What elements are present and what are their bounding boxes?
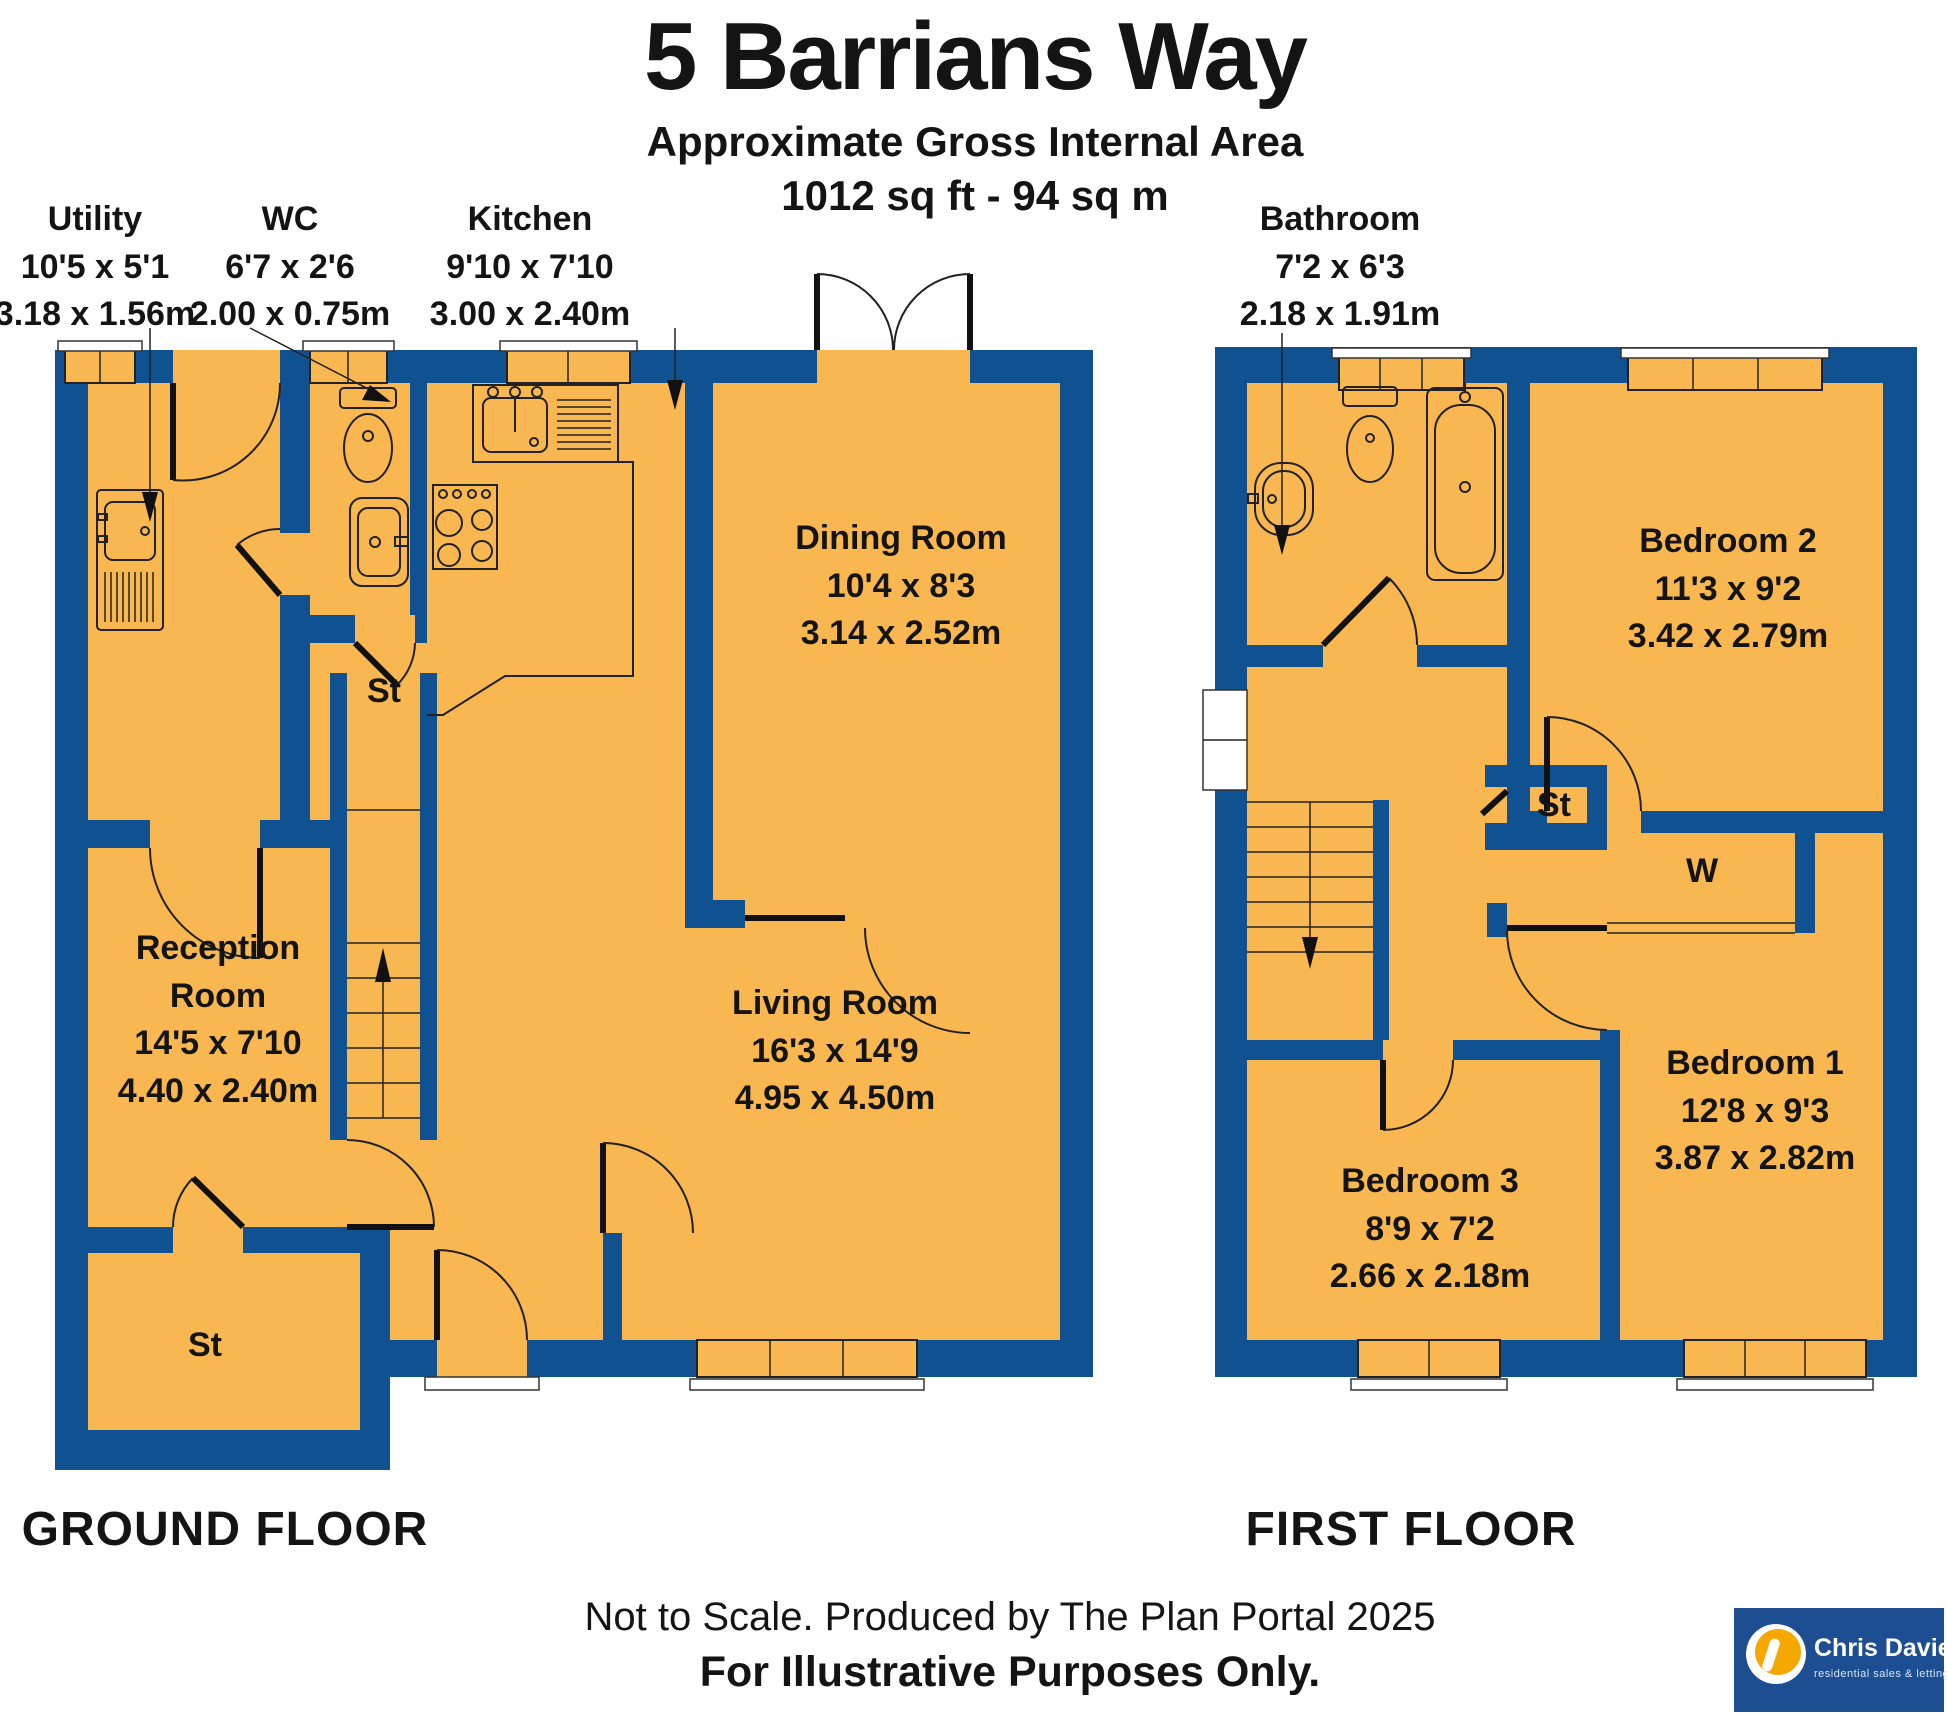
bedroom3-metric: 2.66 x 2.18m bbox=[1330, 1253, 1530, 1301]
dining-metric: 3.14 x 2.52m bbox=[795, 610, 1007, 658]
wc-metric: 2.00 x 0.75m bbox=[190, 291, 390, 339]
gf-bay-window bbox=[697, 1340, 917, 1377]
page-title: 5 Barrians Way bbox=[644, 2, 1306, 112]
label-bedroom1: Bedroom 1 12'8 x 9'3 3.87 x 2.82m bbox=[1655, 1040, 1855, 1183]
reception-metric: 4.40 x 2.40m bbox=[103, 1068, 333, 1116]
dining-imperial: 10'4 x 8'3 bbox=[795, 563, 1007, 611]
gf-frenchdoor-opening bbox=[817, 350, 970, 383]
reception-imperial: 14'5 x 7'10 bbox=[103, 1020, 333, 1068]
bedroom2-name: Bedroom 2 bbox=[1628, 518, 1828, 566]
label-bedroom3: Bedroom 3 8'9 x 7'2 2.66 x 2.18m bbox=[1330, 1158, 1530, 1301]
label-kitchen: Kitchen 9'10 x 7'10 3.00 x 2.40m bbox=[430, 196, 630, 339]
living-name: Living Room bbox=[732, 980, 938, 1028]
wc-imperial: 6'7 x 2'6 bbox=[190, 244, 390, 292]
label-reception: Reception Room 14'5 x 7'10 4.40 x 2.40m bbox=[103, 925, 333, 1115]
bedroom1-imperial: 12'8 x 9'3 bbox=[1655, 1088, 1855, 1136]
page-area: 1012 sq ft - 94 sq m bbox=[781, 172, 1169, 220]
label-bathroom: Bathroom 7'2 x 6'3 2.18 x 1.91m bbox=[1240, 196, 1440, 339]
first-floor-title: FIRST FLOOR bbox=[1246, 1502, 1577, 1557]
bedroom1-name: Bedroom 1 bbox=[1655, 1040, 1855, 1088]
bedroom1-metric: 3.87 x 2.82m bbox=[1655, 1135, 1855, 1183]
label-living: Living Room 16'3 x 14'9 4.95 x 4.50m bbox=[732, 980, 938, 1123]
label-dining: Dining Room 10'4 x 8'3 3.14 x 2.52m bbox=[795, 515, 1007, 658]
page-subtitle: Approximate Gross Internal Area bbox=[647, 118, 1304, 166]
bathroom-imperial: 7'2 x 6'3 bbox=[1240, 244, 1440, 292]
label-utility: Utility 10'5 x 5'1 3.18 x 1.56m bbox=[0, 196, 195, 339]
utility-metric: 3.18 x 1.56m bbox=[0, 291, 195, 339]
gf-store-room-tag: St bbox=[188, 1326, 222, 1365]
ground-floor-title: GROUND FLOOR bbox=[22, 1502, 429, 1557]
footer-disclaimer: Not to Scale. Produced by The Plan Porta… bbox=[585, 1595, 1436, 1640]
bathroom-metric: 2.18 x 1.91m bbox=[1240, 291, 1440, 339]
agency-tagline: residential sales & lettings bbox=[1814, 1668, 1947, 1680]
dining-name: Dining Room bbox=[795, 515, 1007, 563]
ff-store-tag: St bbox=[1537, 786, 1571, 825]
agency-logo: Chris Davies residential sales & letting… bbox=[1734, 1608, 1944, 1712]
reception-name: Reception Room bbox=[136, 929, 300, 1015]
bedroom3-name: Bedroom 3 bbox=[1330, 1158, 1530, 1206]
bedroom2-imperial: 11'3 x 9'2 bbox=[1628, 566, 1828, 614]
utility-name: Utility bbox=[0, 196, 195, 244]
gf-backdoor-opening bbox=[173, 350, 280, 383]
gf-frontdoor-opening bbox=[437, 1340, 527, 1377]
wc-name: WC bbox=[190, 196, 390, 244]
gf-frontdoor-step bbox=[425, 1377, 539, 1390]
gf-understairs-store-tag: St bbox=[367, 672, 401, 711]
label-wc: WC 6'7 x 2'6 2.00 x 0.75m bbox=[190, 196, 390, 339]
living-imperial: 16'3 x 14'9 bbox=[732, 1028, 938, 1076]
bedroom2-metric: 3.42 x 2.79m bbox=[1628, 613, 1828, 661]
living-metric: 4.95 x 4.50m bbox=[732, 1075, 938, 1123]
bedroom3-imperial: 8'9 x 7'2 bbox=[1330, 1206, 1530, 1254]
floorplan-page: 5 Barrians Way Approximate Gross Interna… bbox=[0, 0, 1947, 1713]
first-floor-plan bbox=[1215, 347, 1917, 1390]
footer-illustrative: For Illustrative Purposes Only. bbox=[700, 1648, 1320, 1697]
ground-floor-plan bbox=[45, 340, 1175, 1480]
agency-logo-icon bbox=[1746, 1624, 1806, 1684]
agency-name: Chris Davies bbox=[1814, 1634, 1947, 1663]
bathroom-name: Bathroom bbox=[1240, 196, 1440, 244]
kitchen-name: Kitchen bbox=[430, 196, 630, 244]
ff-wardrobe-tag: W bbox=[1686, 852, 1718, 891]
kitchen-metric: 3.00 x 2.40m bbox=[430, 291, 630, 339]
label-bedroom2: Bedroom 2 11'3 x 9'2 3.42 x 2.79m bbox=[1628, 518, 1828, 661]
utility-imperial: 10'5 x 5'1 bbox=[0, 244, 195, 292]
kitchen-imperial: 9'10 x 7'10 bbox=[430, 244, 630, 292]
